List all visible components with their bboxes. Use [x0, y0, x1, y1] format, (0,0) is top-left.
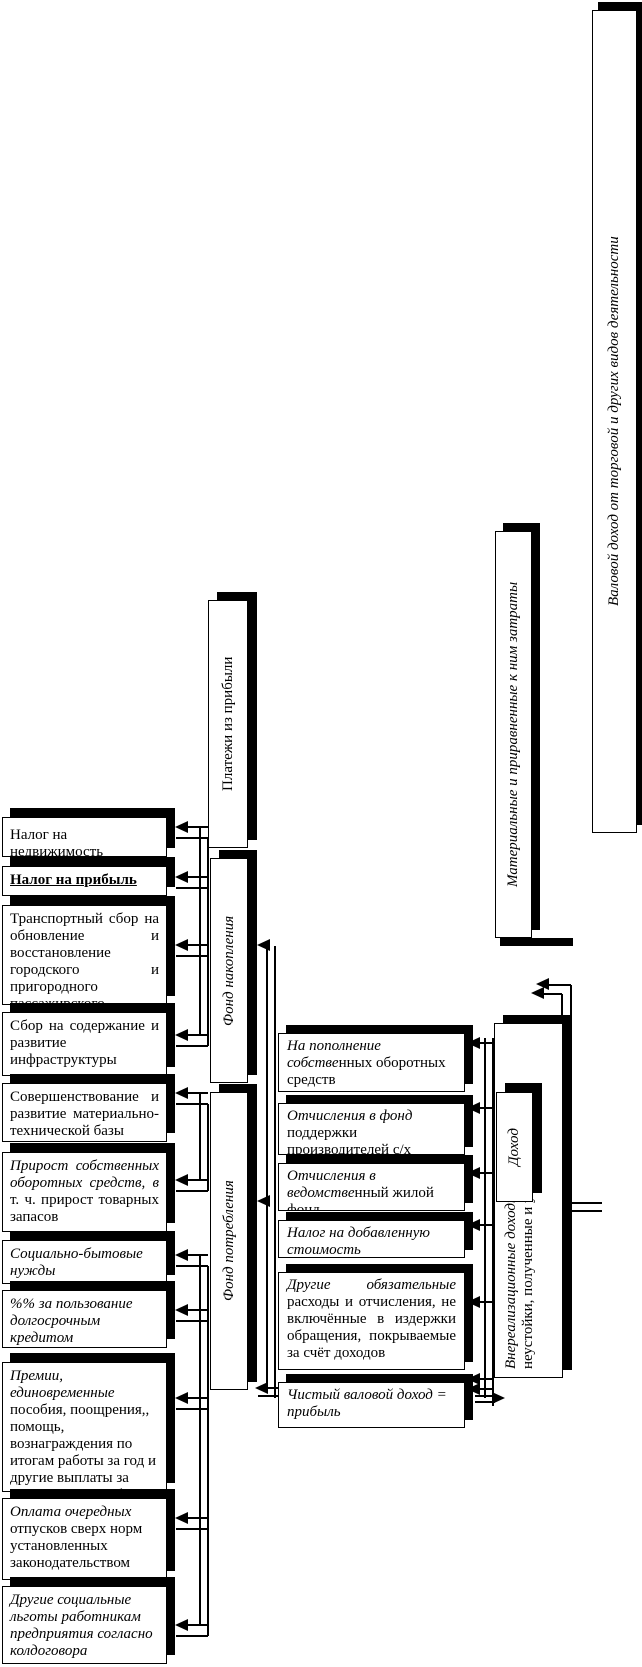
- connector-line: [479, 1224, 493, 1226]
- arrow-left-icon: [531, 987, 544, 999]
- connector-line: [479, 1378, 493, 1380]
- label-part: пособия, поощрения,, помощь, вознагражде…: [10, 1402, 156, 1492]
- label-italic-part: Налог на добавленную стоимость: [287, 1225, 430, 1258]
- box-premii-posobiya: Премии, единовременные пособия, поощрени…: [2, 1362, 167, 1492]
- connector-line: [199, 827, 201, 1036]
- connector-line: [563, 1202, 602, 1204]
- label-part: Налог на прибыль: [10, 872, 137, 888]
- box-nalog-na-nedvizhimost: Налог на недвижимость: [2, 817, 167, 857]
- diagram-canvas: Валовой доход от торговой и других видов…: [0, 0, 642, 1667]
- arrow-right-icon: [492, 1392, 505, 1404]
- box-vedomstvenny-zhiloy-fond: Отчисления в ведомственный жилой фонд: [278, 1163, 465, 1211]
- box-fond-potrebleniya: Фонд потребления: [210, 1092, 248, 1390]
- box-dohod: Доход: [496, 1092, 533, 1202]
- connector-line: [207, 1266, 209, 1636]
- connector-line: [262, 1387, 278, 1389]
- box-platezhi-iz-pribyli: Платежи из прибыли: [208, 600, 248, 848]
- label-italic-part: Доход: [506, 1128, 522, 1166]
- connector-line: [187, 1092, 208, 1094]
- label-italic-part: Фонд потребления: [221, 1181, 237, 1302]
- connector-line: [176, 1320, 208, 1322]
- connector-line: [570, 985, 572, 1016]
- label-part: неустойки, полученные и упл: [520, 1180, 536, 1369]
- box-text: Фонд потребления: [211, 1093, 247, 1389]
- connector-line: [187, 876, 208, 878]
- arrow-left-icon: [257, 1195, 270, 1207]
- label-italic-part: Материальные и приравненные к ним затрат…: [505, 582, 521, 887]
- connector-line: [479, 1172, 493, 1174]
- connector-line: [187, 1309, 208, 1311]
- connector-line: [484, 1038, 486, 1398]
- box-fond-nakopleniya: Фонд накопления: [210, 858, 248, 1083]
- label-italic-part: Прирост собственных оборотных средств, в: [10, 1158, 159, 1191]
- box-text: Материальные и приравненные к ним затрат…: [496, 532, 531, 937]
- connector-line: [479, 1107, 493, 1109]
- connector-line: [563, 1210, 602, 1212]
- connector-line: [176, 1528, 208, 1530]
- label-part: Транспортный сбор на обновление и восста…: [10, 911, 159, 1005]
- box-text: Фонд накопления: [211, 859, 247, 1082]
- label-italic-part: %% за пользование долгосрочным кредитом: [10, 1296, 133, 1346]
- connector-line: [187, 1179, 208, 1181]
- box-soc-bytovye-nuzhdy: Социально-бытовые нужды: [2, 1240, 167, 1284]
- box-procent-za-kredit: %% за пользование долгосрочным кредитом: [2, 1290, 167, 1348]
- connector-line: [561, 994, 563, 1016]
- box-drugie-obyazatelnye-raskhody: Другие обязательные расходы и отчисления…: [278, 1272, 465, 1370]
- connector-line: [187, 1397, 208, 1399]
- box-popolnenie-oborotnyh-sredstv: На пополнение собственных оборотных сред…: [278, 1033, 465, 1092]
- box-sovershenstvovanie-bazy: Совершенствование и развитие материально…: [2, 1083, 167, 1142]
- connector-line: [187, 1034, 208, 1036]
- label-part: расходы и отчисления, не включённые в из…: [287, 1294, 456, 1361]
- connector-line: [207, 838, 209, 1046]
- box-nds: Налог на добавленную стоимость: [278, 1220, 465, 1258]
- connector-line: [479, 1042, 493, 1044]
- connector-line: [548, 984, 571, 986]
- label-italic-part: Социально-бытовые нужды: [10, 1246, 143, 1279]
- connector-line: [176, 1190, 208, 1192]
- label-italic-part: Валовой доход от торговой и других видов…: [606, 237, 622, 607]
- connector-line: [176, 1045, 208, 1047]
- connector-line: [176, 1635, 208, 1637]
- label-part: Сбор на содержание и развитие инфраструк…: [10, 1018, 159, 1076]
- label-italic-part: Другие обязательные: [287, 1277, 456, 1293]
- connector-line: [207, 1104, 209, 1191]
- connector-line: [479, 1388, 493, 1390]
- box-sbor-na-soderzhanie: Сбор на содержание и развитие инфраструк…: [2, 1012, 167, 1076]
- box-valovoy-dokhod: Валовой доход от торговой и других видов…: [592, 10, 637, 833]
- connector-line: [479, 1301, 493, 1303]
- box-oplata-otpuskov: Оплата очередных отпусков сверх норм уст…: [2, 1498, 167, 1580]
- label-part: Налог на недвижимость: [10, 827, 103, 857]
- label-part: т. ч. прирост товарных запасов: [10, 1192, 159, 1225]
- connector-line: [176, 837, 208, 839]
- label-part: Совершенствование и развитие материально…: [10, 1089, 159, 1139]
- connector-line: [258, 1395, 278, 1397]
- connector-line: [274, 946, 276, 1398]
- box-prirost-sredstv: Прирост собственных оборотных средств, в…: [2, 1152, 167, 1232]
- box-text: Валовой доход от торговой и других видов…: [593, 11, 636, 832]
- connector-line: [266, 946, 268, 1390]
- connector-line: [176, 1103, 208, 1105]
- box-fond-podderzhki-sh: Отчисления в фонд поддержки производител…: [278, 1103, 465, 1155]
- box-transportny-sbor: Транспортный сбор на обновление и восста…: [2, 905, 167, 1005]
- box-text: Доход: [497, 1093, 532, 1201]
- label-part: Платежи из прибыли: [220, 657, 236, 791]
- divider-bar: [500, 938, 573, 946]
- connector-line: [187, 1624, 208, 1626]
- connector-line: [176, 955, 208, 957]
- label-italic-part: Другие социальные льготы работникам пред…: [10, 1592, 153, 1659]
- connector-line: [199, 1255, 201, 1626]
- connector-line: [176, 1408, 208, 1410]
- label-italic-part: Внереализационные доходы,: [503, 1185, 519, 1369]
- arrow-left-icon: [257, 939, 270, 951]
- label-italic-part: Оплата очередных: [10, 1504, 131, 1520]
- label-italic-part: Чистый валовой доход = прибыль: [287, 1387, 447, 1420]
- connector-line: [187, 944, 208, 946]
- connector-line: [187, 1517, 208, 1519]
- label-italic-part: Фонд накопления: [221, 915, 237, 1025]
- connector-line: [492, 1038, 494, 1406]
- label-part: отпусков сверх норм установленных законо…: [10, 1521, 142, 1571]
- box-nalog-na-pribyl: Налог на прибыль: [2, 866, 167, 896]
- connector-line: [199, 1093, 201, 1181]
- box-materialnye-zatraty: Материальные и приравненные к ним затрат…: [495, 531, 532, 938]
- connector-line: [187, 1254, 208, 1256]
- label-italic-part: Премии, единовременные: [10, 1368, 115, 1401]
- connector-line: [543, 993, 562, 995]
- box-drugie-lgoty: Другие социальные льготы работникам пред…: [2, 1586, 167, 1664]
- connector-line: [176, 1265, 208, 1267]
- box-text: Платежи из прибыли: [209, 601, 247, 847]
- connector-line: [187, 826, 208, 828]
- label-part: поддержки производителей с/х продукции: [287, 1125, 411, 1155]
- box-chisty-valovoy-dokhod: Чистый валовой доход = прибыль: [278, 1382, 465, 1428]
- label-italic-part: Отчисления в фонд: [287, 1108, 412, 1124]
- connector-line: [176, 887, 208, 889]
